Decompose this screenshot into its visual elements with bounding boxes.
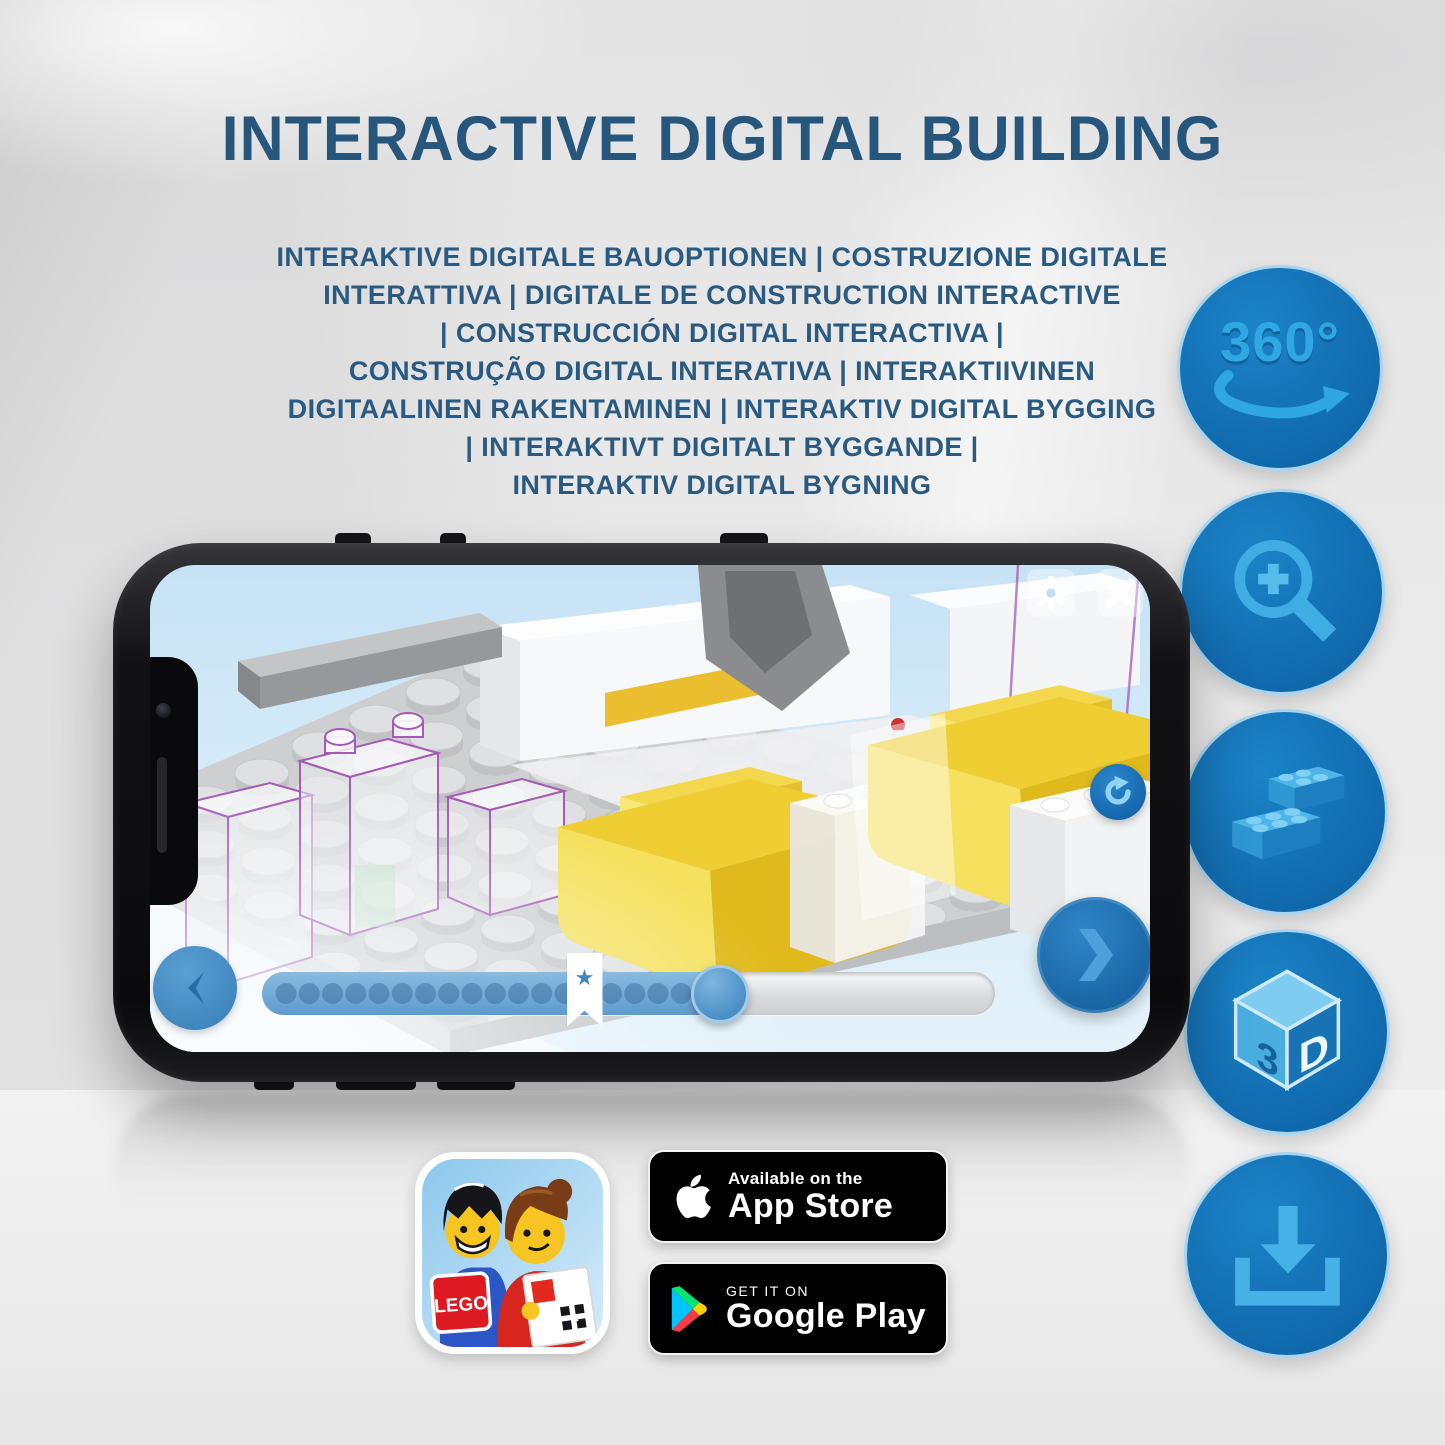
subtitle-line: INTERAKTIV DIGITAL BYGNING [222, 466, 1222, 504]
smartphone: ★ [113, 543, 1190, 1082]
subtitle-line: | INTERAKTIVT DIGITALT BYGGANDE | [222, 428, 1222, 466]
apple-logo-icon [668, 1170, 712, 1224]
subtitle-line: INTERATTIVA | DIGITALE DE CONSTRUCTION I… [222, 276, 1222, 314]
3d-cube-icon: 3 D [1217, 962, 1357, 1102]
feature-brick-building [1182, 709, 1388, 915]
phone-notch [150, 657, 198, 905]
download-icon [1220, 1188, 1355, 1323]
marketing-image: INTERACTIVE DIGITAL BUILDING INTERAKTIVE… [0, 0, 1445, 1445]
rotation-arrow-icon [1205, 370, 1355, 422]
subtitle-multilanguage: INTERAKTIVE DIGITALE BAUOPTIONEN | COSTR… [222, 238, 1222, 504]
app-store-tagline: Available on the [728, 1169, 893, 1189]
rotate-model-button[interactable] [1090, 764, 1146, 820]
chevron-right-icon [1069, 925, 1121, 985]
close-icon [1105, 578, 1135, 608]
chevron-left-icon [178, 968, 212, 1008]
360-label: 360° [1220, 314, 1340, 370]
lego-builder-app-icon: LEGO [415, 1152, 610, 1354]
subtitle-line: INTERAKTIVE DIGITALE BAUOPTIONEN | COSTR… [222, 238, 1222, 276]
lego-app-icon-art: LEGO [422, 1159, 603, 1347]
app-store-label: App Store [728, 1189, 893, 1225]
google-play-badge[interactable]: GET IT ON Google Play [648, 1262, 948, 1355]
feature-360-rotation: 360° [1177, 265, 1383, 471]
subtitle-line: | CONSTRUCCIÓN DIGITAL INTERACTIVA | [222, 314, 1222, 352]
cube-3-label: 3 [1257, 1031, 1279, 1086]
next-step-button[interactable] [1037, 897, 1150, 1013]
front-camera [156, 703, 171, 718]
settings-button[interactable] [1027, 569, 1075, 617]
close-button[interactable] [1097, 569, 1143, 617]
progress-fill [262, 972, 738, 1015]
google-play-label: Google Play [726, 1299, 926, 1335]
step-dots [262, 972, 738, 1015]
lego-logo-text: LEGO [434, 1293, 489, 1318]
subtitle-line: CONSTRUÇÃO DIGITAL INTERATIVA | INTERAKT… [222, 352, 1222, 390]
zoom-in-icon [1217, 527, 1347, 657]
feature-zoom [1179, 489, 1385, 695]
earpiece-speaker [157, 757, 167, 853]
rotate-icon [1100, 774, 1136, 810]
build-progress-slider[interactable]: ★ [262, 972, 995, 1015]
gear-icon [1034, 576, 1068, 610]
feature-3d-view: 3 D [1184, 929, 1390, 1135]
previous-step-button[interactable] [153, 946, 237, 1030]
app-store-badge[interactable]: Available on the App Store [648, 1150, 948, 1243]
builder-app-3d-viewport[interactable]: ★ [150, 565, 1150, 1052]
feature-download [1184, 1152, 1390, 1358]
slider-thumb[interactable] [691, 965, 749, 1023]
subtitle-line: DIGITAALINEN RAKENTAMINEN | INTERAKTIV D… [222, 390, 1222, 428]
page-title: INTERACTIVE DIGITAL BUILDING [0, 102, 1445, 175]
brick-icon [1215, 742, 1355, 882]
google-play-logo-icon [668, 1286, 710, 1332]
